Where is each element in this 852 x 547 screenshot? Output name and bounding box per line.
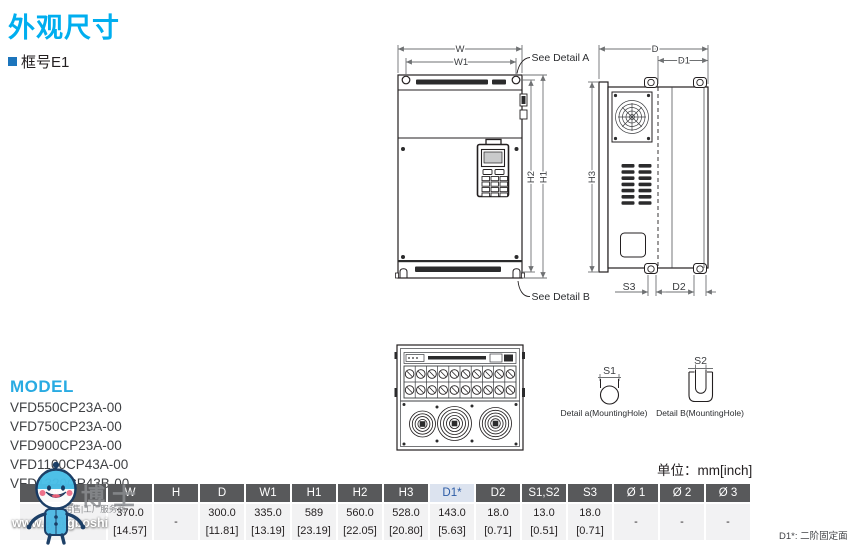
model-item: VFD550CP23A-00	[10, 398, 129, 417]
dim-label-w: W	[456, 44, 465, 55]
th-o3: Ø 3	[706, 484, 750, 502]
detail-a: S1 Detail a(MountingHole)	[561, 365, 648, 418]
terminal-block	[404, 366, 516, 398]
unit-note: 单位：mm[inch]	[657, 459, 752, 479]
cell-d1: 143.0[5.63]	[430, 504, 474, 540]
th-s3: S3	[568, 484, 612, 502]
see-detail-a-label: See Detail A	[532, 52, 590, 64]
front-view: W W1 H2 H1 See Detail A See Detail B	[396, 44, 590, 303]
dim-label-w1: W1	[454, 57, 468, 68]
th-d2: D2	[476, 484, 520, 502]
keypad	[478, 140, 509, 197]
manual-page: 外观尺寸 框号E1	[0, 0, 852, 547]
bottom-view	[395, 345, 526, 450]
cell-o2: -	[660, 504, 704, 540]
dim-label-s3: S3	[623, 281, 636, 293]
side-fan	[612, 92, 652, 142]
model-item: VFD750CP23A-00	[10, 417, 129, 436]
th-o1: Ø 1	[614, 484, 658, 502]
cell-o1: -	[614, 504, 658, 540]
watermark-mascot-icon	[12, 459, 94, 547]
detail-b-caption: Detail B(MountingHole)	[656, 408, 744, 418]
th-d1: D1*	[430, 484, 474, 502]
table-footnote: D1*: 二阶固定面	[779, 528, 848, 542]
model-heading: MODEL	[10, 377, 74, 397]
th-h: H	[154, 484, 198, 502]
dim-label-h2: H2	[526, 171, 537, 183]
detail-a-caption: Detail a(MountingHole)	[561, 408, 648, 418]
cell-s3: 18.0[0.71]	[568, 504, 612, 540]
th-d: D	[200, 484, 244, 502]
cell-o3: -	[706, 504, 750, 540]
see-detail-b-label: See Detail B	[532, 291, 590, 303]
th-h2: H2	[338, 484, 382, 502]
th-h1: H1	[292, 484, 336, 502]
th-h3: H3	[384, 484, 428, 502]
detail-b: S2 Detail B(MountingHole)	[656, 355, 744, 418]
dim-label-d1: D1	[678, 56, 690, 67]
cell-d: 300.0[11.81]	[200, 504, 244, 540]
th-s1s2: S1,S2	[522, 484, 566, 502]
dim-label-s2: S2	[694, 355, 707, 367]
dim-label-s1: S1	[603, 365, 616, 377]
th-o2: Ø 2	[660, 484, 704, 502]
th-w1: W1	[246, 484, 290, 502]
dim-label-h3: H3	[587, 171, 598, 183]
cell-h: -	[154, 504, 198, 540]
side-view: D D1 H3 S3 D2	[587, 44, 716, 296]
cell-w1: 335.0[13.19]	[246, 504, 290, 540]
dim-label-h1: H1	[539, 171, 550, 183]
model-item: VFD900CP23A-00	[10, 436, 129, 455]
cell-s1s2: 13.0[0.51]	[522, 504, 566, 540]
dim-label-d2: D2	[672, 281, 686, 293]
cell-h2: 560.0[22.05]	[338, 504, 382, 540]
cell-d2: 18.0[0.71]	[476, 504, 520, 540]
cell-h3: 528.0[20.80]	[384, 504, 428, 540]
dim-label-d: D	[652, 44, 659, 55]
cell-h1: 589[23.19]	[292, 504, 336, 540]
